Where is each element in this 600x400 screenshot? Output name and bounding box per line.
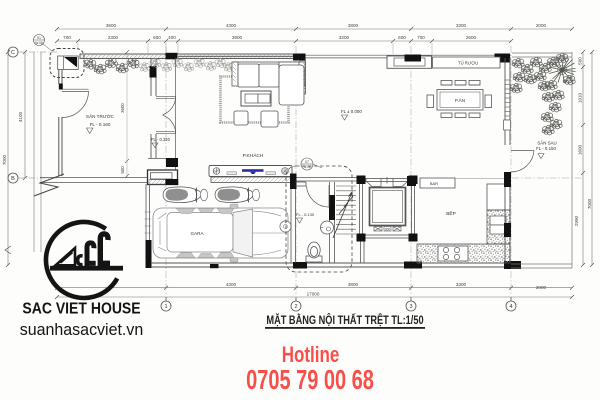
svg-text:FL - 0.160: FL - 0.160	[90, 122, 111, 127]
svg-text:SÂN SAU: SÂN SAU	[537, 141, 556, 146]
svg-text:2600: 2600	[466, 35, 477, 40]
svg-text:BAR: BAR	[430, 181, 438, 186]
svg-text:4300: 4300	[226, 282, 237, 287]
svg-text:400: 400	[168, 35, 176, 40]
svg-text:2: 2	[294, 304, 297, 310]
svg-text:700: 700	[417, 35, 425, 40]
svg-text:Hotline: Hotline	[282, 343, 340, 368]
svg-text:TỦ RƯỢU: TỦ RƯỢU	[458, 61, 478, 66]
svg-text:MẶT BẰNG NỘI THẤT TRỆT TL:1/50: MẶT BẰNG NỘI THẤT TRỆT TL:1/50	[266, 313, 423, 328]
svg-text:2990: 2990	[574, 215, 579, 226]
svg-text:4100: 4100	[18, 111, 23, 122]
svg-text:SAC VIET HOUSE: SAC VIET HOUSE	[22, 301, 140, 318]
svg-text:700: 700	[63, 35, 71, 40]
svg-text:07: 07	[305, 160, 309, 164]
svg-text:SÂN TRƯỚC: SÂN TRƯỚC	[86, 113, 115, 119]
svg-text:W.08: W.08	[35, 41, 42, 45]
svg-text:500: 500	[578, 57, 583, 65]
svg-text:17000: 17000	[307, 291, 320, 296]
svg-text:2000: 2000	[536, 285, 547, 290]
svg-text:3600: 3600	[120, 103, 125, 113]
svg-text:FL - 0.150: FL - 0.150	[536, 146, 556, 151]
svg-text:01: 01	[37, 36, 41, 40]
svg-text:4300: 4300	[226, 23, 237, 28]
svg-text:C: C	[11, 50, 15, 56]
svg-text:3800: 3800	[348, 23, 359, 28]
svg-text:FL ± 0.000: FL ± 0.000	[341, 109, 362, 114]
svg-text:BẾP: BẾP	[446, 210, 456, 217]
svg-text:7000: 7000	[2, 154, 7, 165]
svg-text:1600: 1600	[578, 144, 583, 155]
svg-text:2300: 2300	[108, 35, 119, 40]
svg-text:3: 3	[409, 304, 412, 310]
svg-text:3600: 3600	[106, 23, 117, 28]
svg-text:2000: 2000	[536, 23, 547, 28]
svg-text:P.KHÁCH: P.KHÁCH	[243, 152, 264, 159]
svg-text:3300: 3300	[456, 282, 467, 287]
svg-text:1910: 1910	[578, 92, 583, 103]
svg-text:3800: 3800	[348, 282, 359, 287]
svg-text:suanhasacviet.vn: suanhasacviet.vn	[20, 321, 144, 339]
svg-text:FL - 0.320: FL - 0.320	[151, 137, 171, 142]
svg-text:600: 600	[153, 35, 161, 40]
svg-text:4: 4	[509, 304, 512, 310]
svg-text:GARA: GARA	[190, 231, 204, 236]
svg-text:0705 79 00 68: 0705 79 00 68	[246, 365, 374, 396]
svg-text:600: 600	[398, 35, 406, 40]
svg-text:3300: 3300	[456, 23, 467, 28]
svg-text:1: 1	[164, 304, 167, 310]
svg-text:W.08: W.08	[303, 165, 310, 169]
svg-text:3900: 3900	[232, 35, 243, 40]
svg-text:B: B	[11, 176, 15, 182]
svg-text:P.ĂN: P.ĂN	[455, 97, 465, 103]
svg-text:7000: 7000	[587, 198, 592, 209]
svg-text:3200: 3200	[339, 35, 350, 40]
svg-text:500: 500	[120, 166, 125, 174]
svg-text:FL - 0.130: FL - 0.130	[296, 212, 315, 217]
svg-text:900: 900	[385, 228, 391, 232]
